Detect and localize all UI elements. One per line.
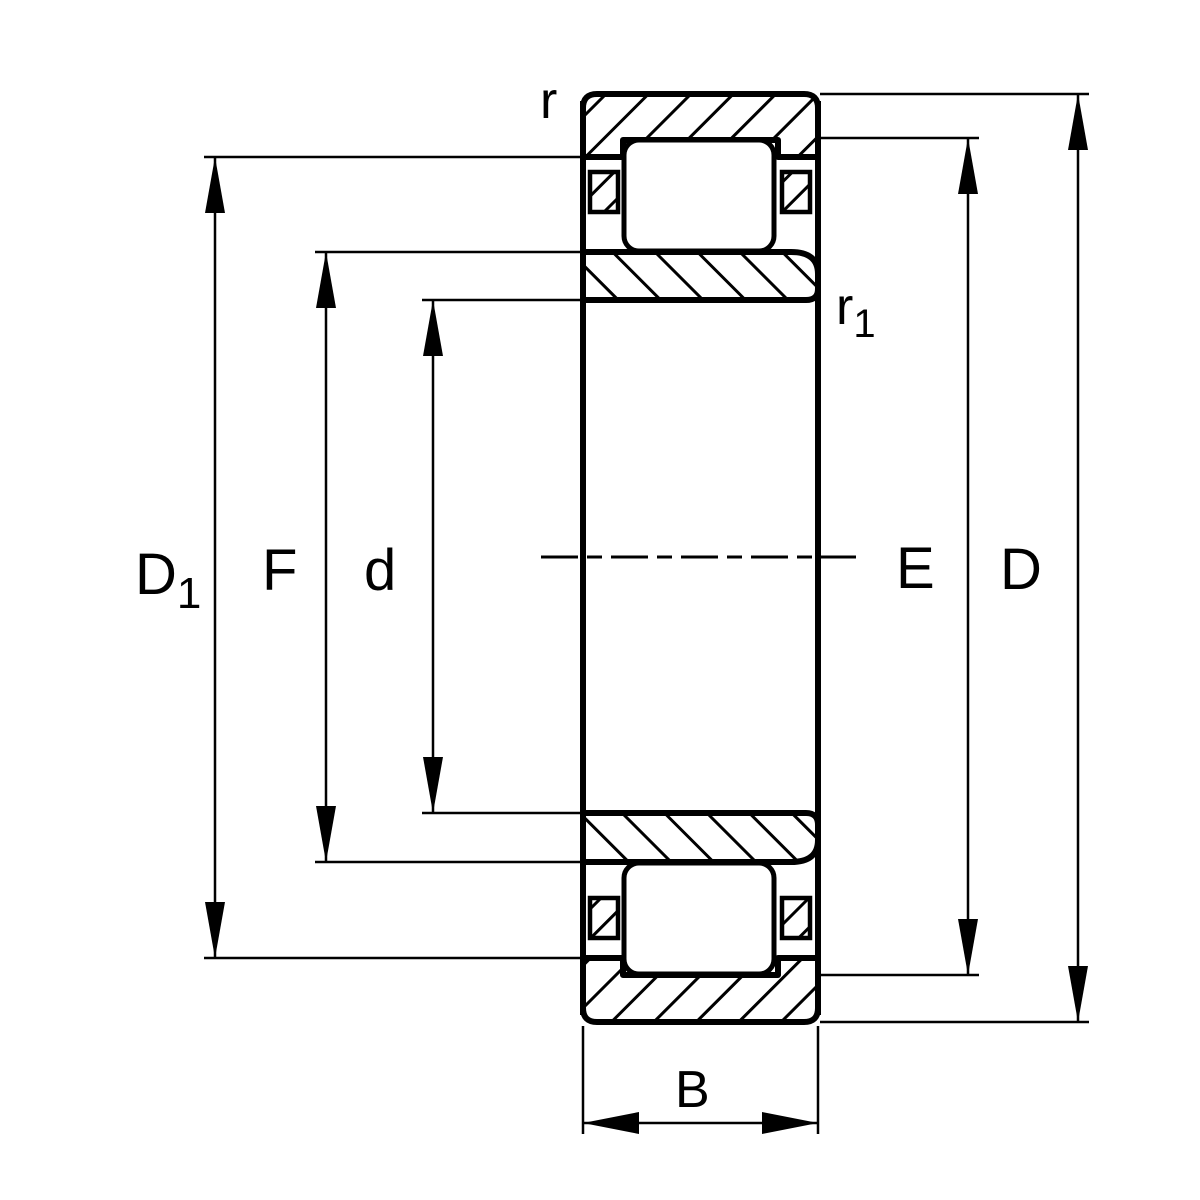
bearing-dimension-diagram: D1 F d E D [0, 0, 1200, 1200]
cage-bar-top-right [782, 172, 810, 212]
label-d: d [364, 538, 396, 603]
cage-bar-top-left [590, 172, 618, 212]
diagram-canvas: D1 F d E D [0, 0, 1200, 1200]
inner-ring-bottom-section [583, 813, 818, 862]
cage-bar-bottom-left [590, 898, 618, 938]
label-D: D [1000, 537, 1042, 602]
cage-bar-bottom-right [782, 898, 810, 938]
label-f: F [262, 538, 297, 603]
inner-ring-top-section [583, 252, 818, 300]
roller-bottom [624, 863, 774, 974]
roller-top [624, 140, 774, 251]
label-e: E [896, 536, 935, 601]
label-r: r [540, 72, 557, 130]
label-b: B [675, 1061, 710, 1119]
